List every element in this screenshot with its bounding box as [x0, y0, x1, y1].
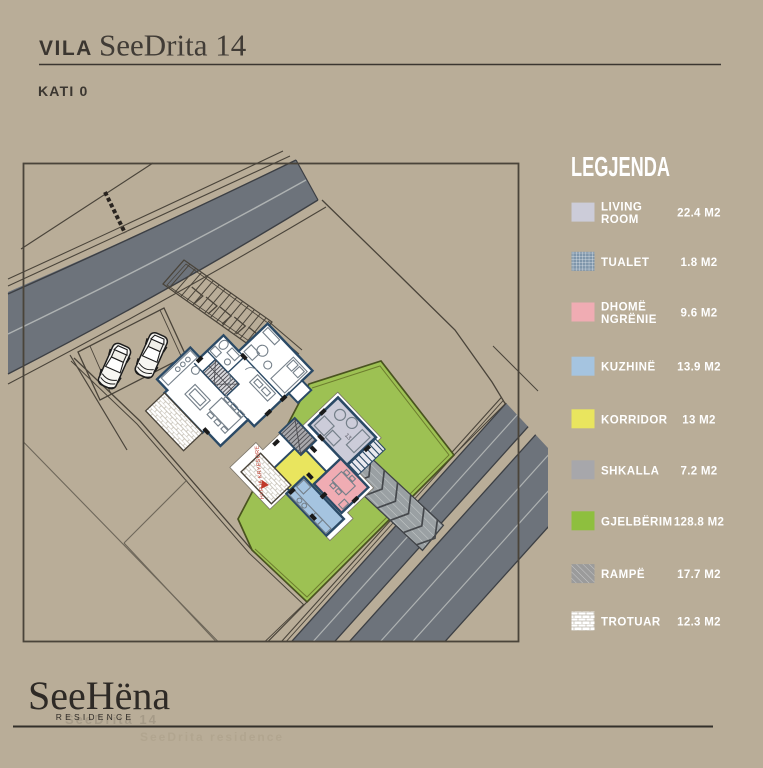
svg-text:KUZHINË: KUZHINË: [601, 361, 656, 374]
svg-text:13.9 M2: 13.9 M2: [677, 362, 721, 374]
svg-text:SeeDrita 14: SeeDrita 14: [99, 28, 247, 63]
svg-text:ROOM: ROOM: [601, 214, 639, 226]
svg-text:GJELBËRIM: GJELBËRIM: [601, 515, 673, 528]
svg-text:TUALET: TUALET: [601, 257, 649, 269]
svg-text:TROTUAR: TROTUAR: [601, 617, 661, 629]
svg-text:SHKALLA: SHKALLA: [601, 465, 659, 477]
svg-text:VILA: VILA: [39, 37, 93, 60]
svg-text:KORRIDOR: KORRIDOR: [601, 414, 668, 426]
svg-text:13 M2: 13 M2: [682, 414, 715, 426]
svg-text:12.3 M2: 12.3 M2: [677, 617, 721, 629]
svg-text:NGRËNIE: NGRËNIE: [601, 313, 657, 326]
svg-text:RAMPË: RAMPË: [601, 568, 645, 581]
svg-text:7.2 M2: 7.2 M2: [681, 465, 718, 477]
svg-text:LEGJENDA: LEGJENDA: [571, 151, 670, 182]
svg-text:DHOMË: DHOMË: [601, 301, 646, 314]
svg-text:128.8 M2: 128.8 M2: [674, 516, 724, 528]
svg-text:SeeDrita 14: SeeDrita 14: [65, 712, 158, 727]
svg-text:17.7 M2: 17.7 M2: [677, 569, 721, 581]
svg-text:9.6 M2: 9.6 M2: [681, 308, 718, 320]
svg-text:KATI 0: KATI 0: [38, 83, 89, 99]
svg-text:LIVING: LIVING: [601, 202, 642, 214]
svg-text:22.4 M2: 22.4 M2: [677, 208, 721, 220]
svg-text:1.8 M2: 1.8 M2: [681, 257, 718, 269]
svg-text:SeeDrita residence: SeeDrita residence: [140, 730, 284, 744]
